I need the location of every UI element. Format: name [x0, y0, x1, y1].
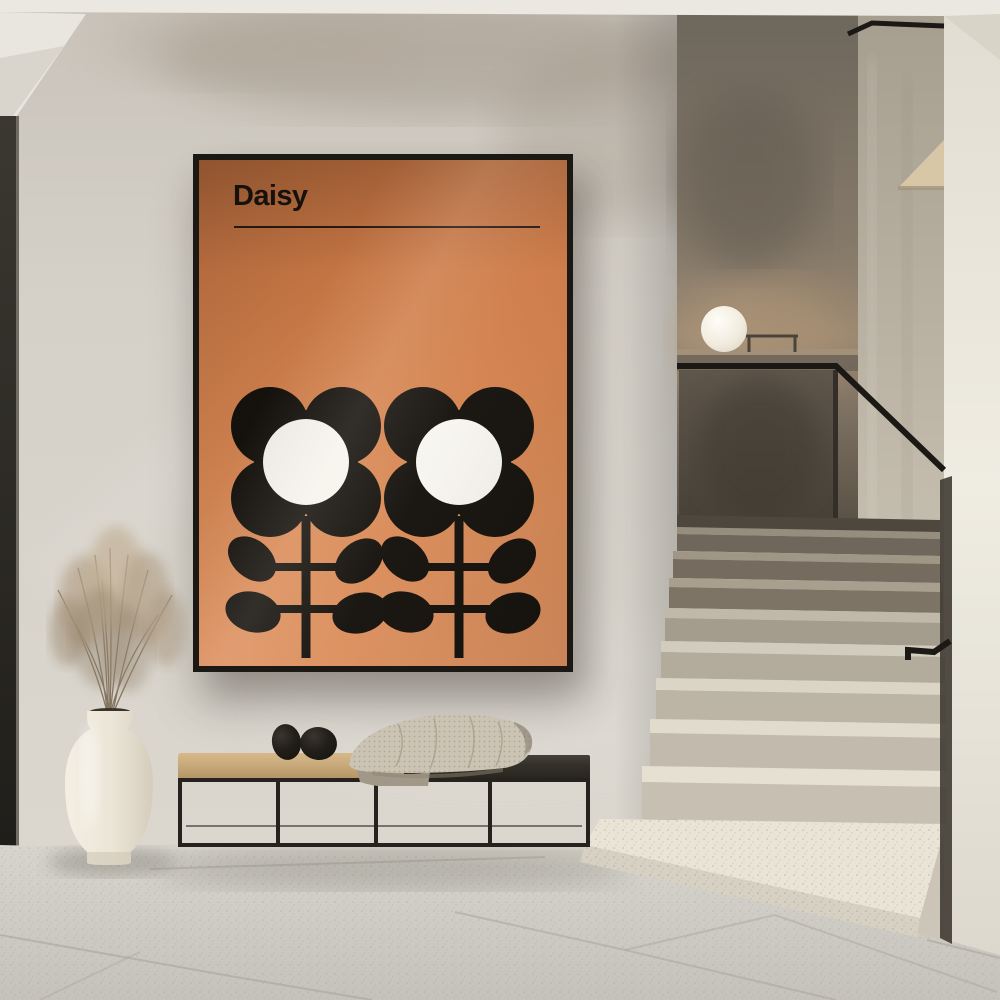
flower-center: [416, 419, 502, 505]
wall-corner-groove: [940, 476, 952, 944]
hallway-scene: Daisy: [0, 0, 1000, 1000]
sphere-lamp: [701, 306, 747, 352]
lamp-shelf: [677, 349, 858, 355]
leaf: [326, 529, 392, 593]
leaf: [374, 585, 438, 638]
stairwell-recess: [677, 14, 860, 530]
dried-grass: [50, 526, 186, 716]
bench-frame: [178, 778, 590, 848]
right-front-wall: [944, 14, 1000, 960]
leaf: [481, 586, 545, 639]
daisy-poster: Daisy: [199, 160, 567, 666]
flower-left: [219, 387, 392, 658]
waffle-blanket: [338, 710, 538, 786]
door-edge: [0, 116, 16, 852]
ceramic-vase: [65, 708, 153, 865]
flower-right: [372, 387, 545, 658]
bench-floor-shadow: [160, 848, 630, 888]
glass-edge: [833, 370, 838, 529]
poster-frame: Daisy: [193, 154, 573, 672]
leaf: [479, 529, 545, 593]
flower-center: [263, 419, 349, 505]
daisy-artwork: [199, 160, 567, 666]
vase-and-grass: [40, 520, 200, 870]
leaf: [221, 585, 285, 638]
